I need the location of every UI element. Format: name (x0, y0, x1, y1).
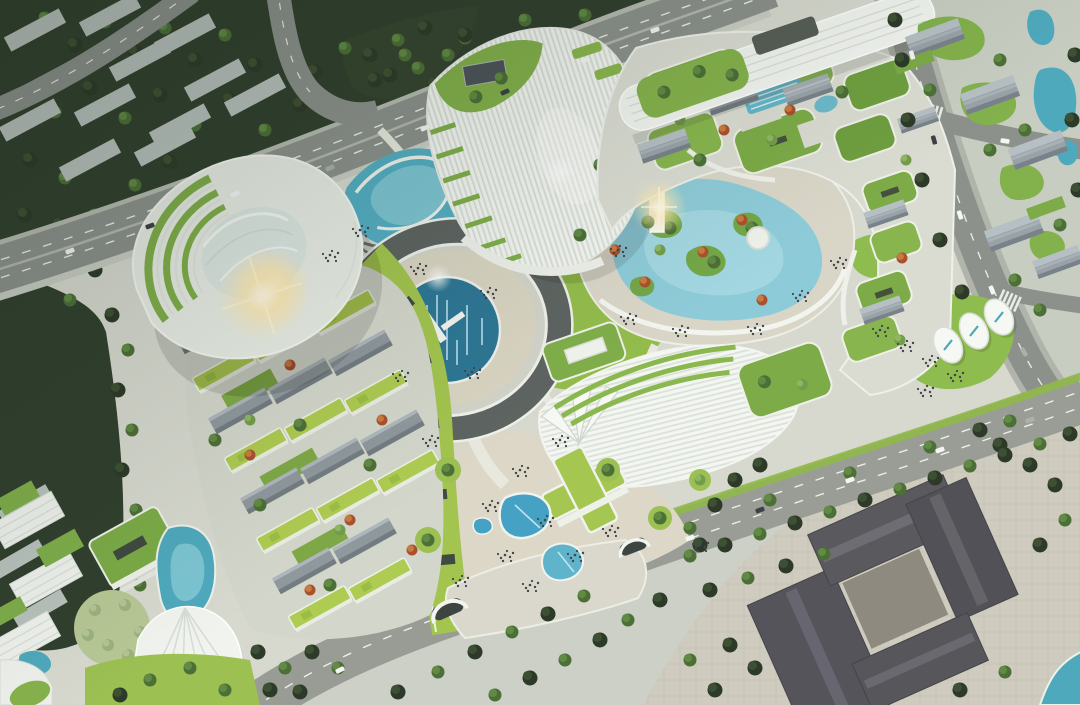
corner-shading-overlay (0, 0, 1080, 705)
aerial-masterplan-rendering (0, 0, 1080, 705)
